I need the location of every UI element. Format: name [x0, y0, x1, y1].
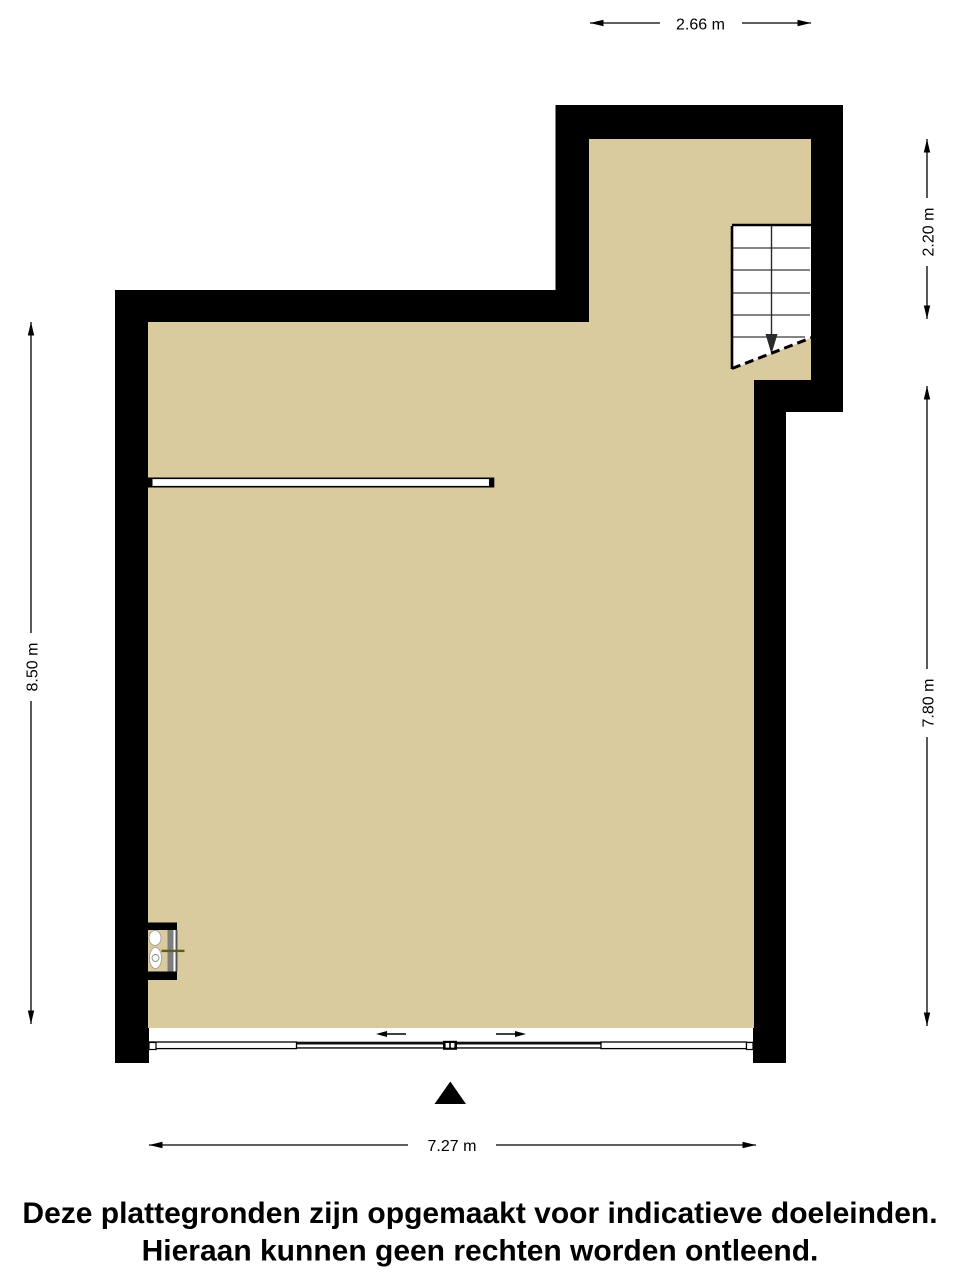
svg-text:Hieraan kunnen geen rechten wo: Hieraan kunnen geen rechten worden ontle…: [142, 1235, 819, 1268]
svg-text:2.20 m: 2.20 m: [921, 208, 938, 257]
svg-text:Deze plattegronden zijn opgema: Deze plattegronden zijn opgemaakt voor i…: [22, 1197, 937, 1230]
svg-text:7.27 m: 7.27 m: [428, 1138, 477, 1155]
svg-text:2.66 m: 2.66 m: [676, 17, 725, 34]
svg-text:7.80 m: 7.80 m: [921, 679, 938, 728]
svg-text:8.50 m: 8.50 m: [25, 643, 42, 692]
